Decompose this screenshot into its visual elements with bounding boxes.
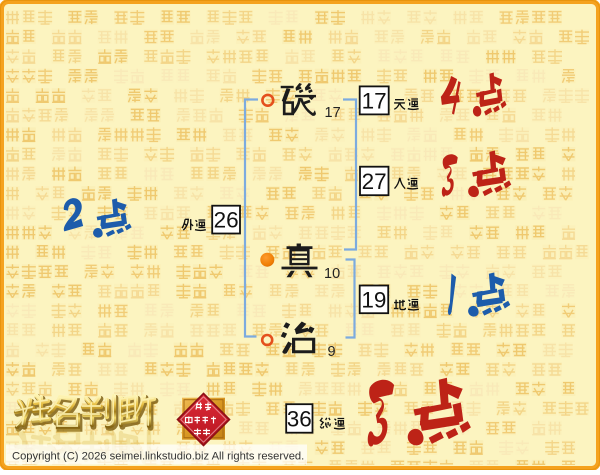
svg-text:17: 17 xyxy=(325,105,341,121)
svg-text:10: 10 xyxy=(324,266,340,282)
svg-text:Copyright (C) 2026 seimei.link: Copyright (C) 2026 seimei.linkstudio.biz… xyxy=(12,450,304,462)
svg-text:36: 36 xyxy=(287,407,312,432)
svg-text:27: 27 xyxy=(362,169,387,194)
svg-text:19: 19 xyxy=(361,288,386,313)
svg-text:9: 9 xyxy=(328,344,336,360)
svg-text:26: 26 xyxy=(214,208,239,233)
svg-text:17: 17 xyxy=(362,89,387,114)
